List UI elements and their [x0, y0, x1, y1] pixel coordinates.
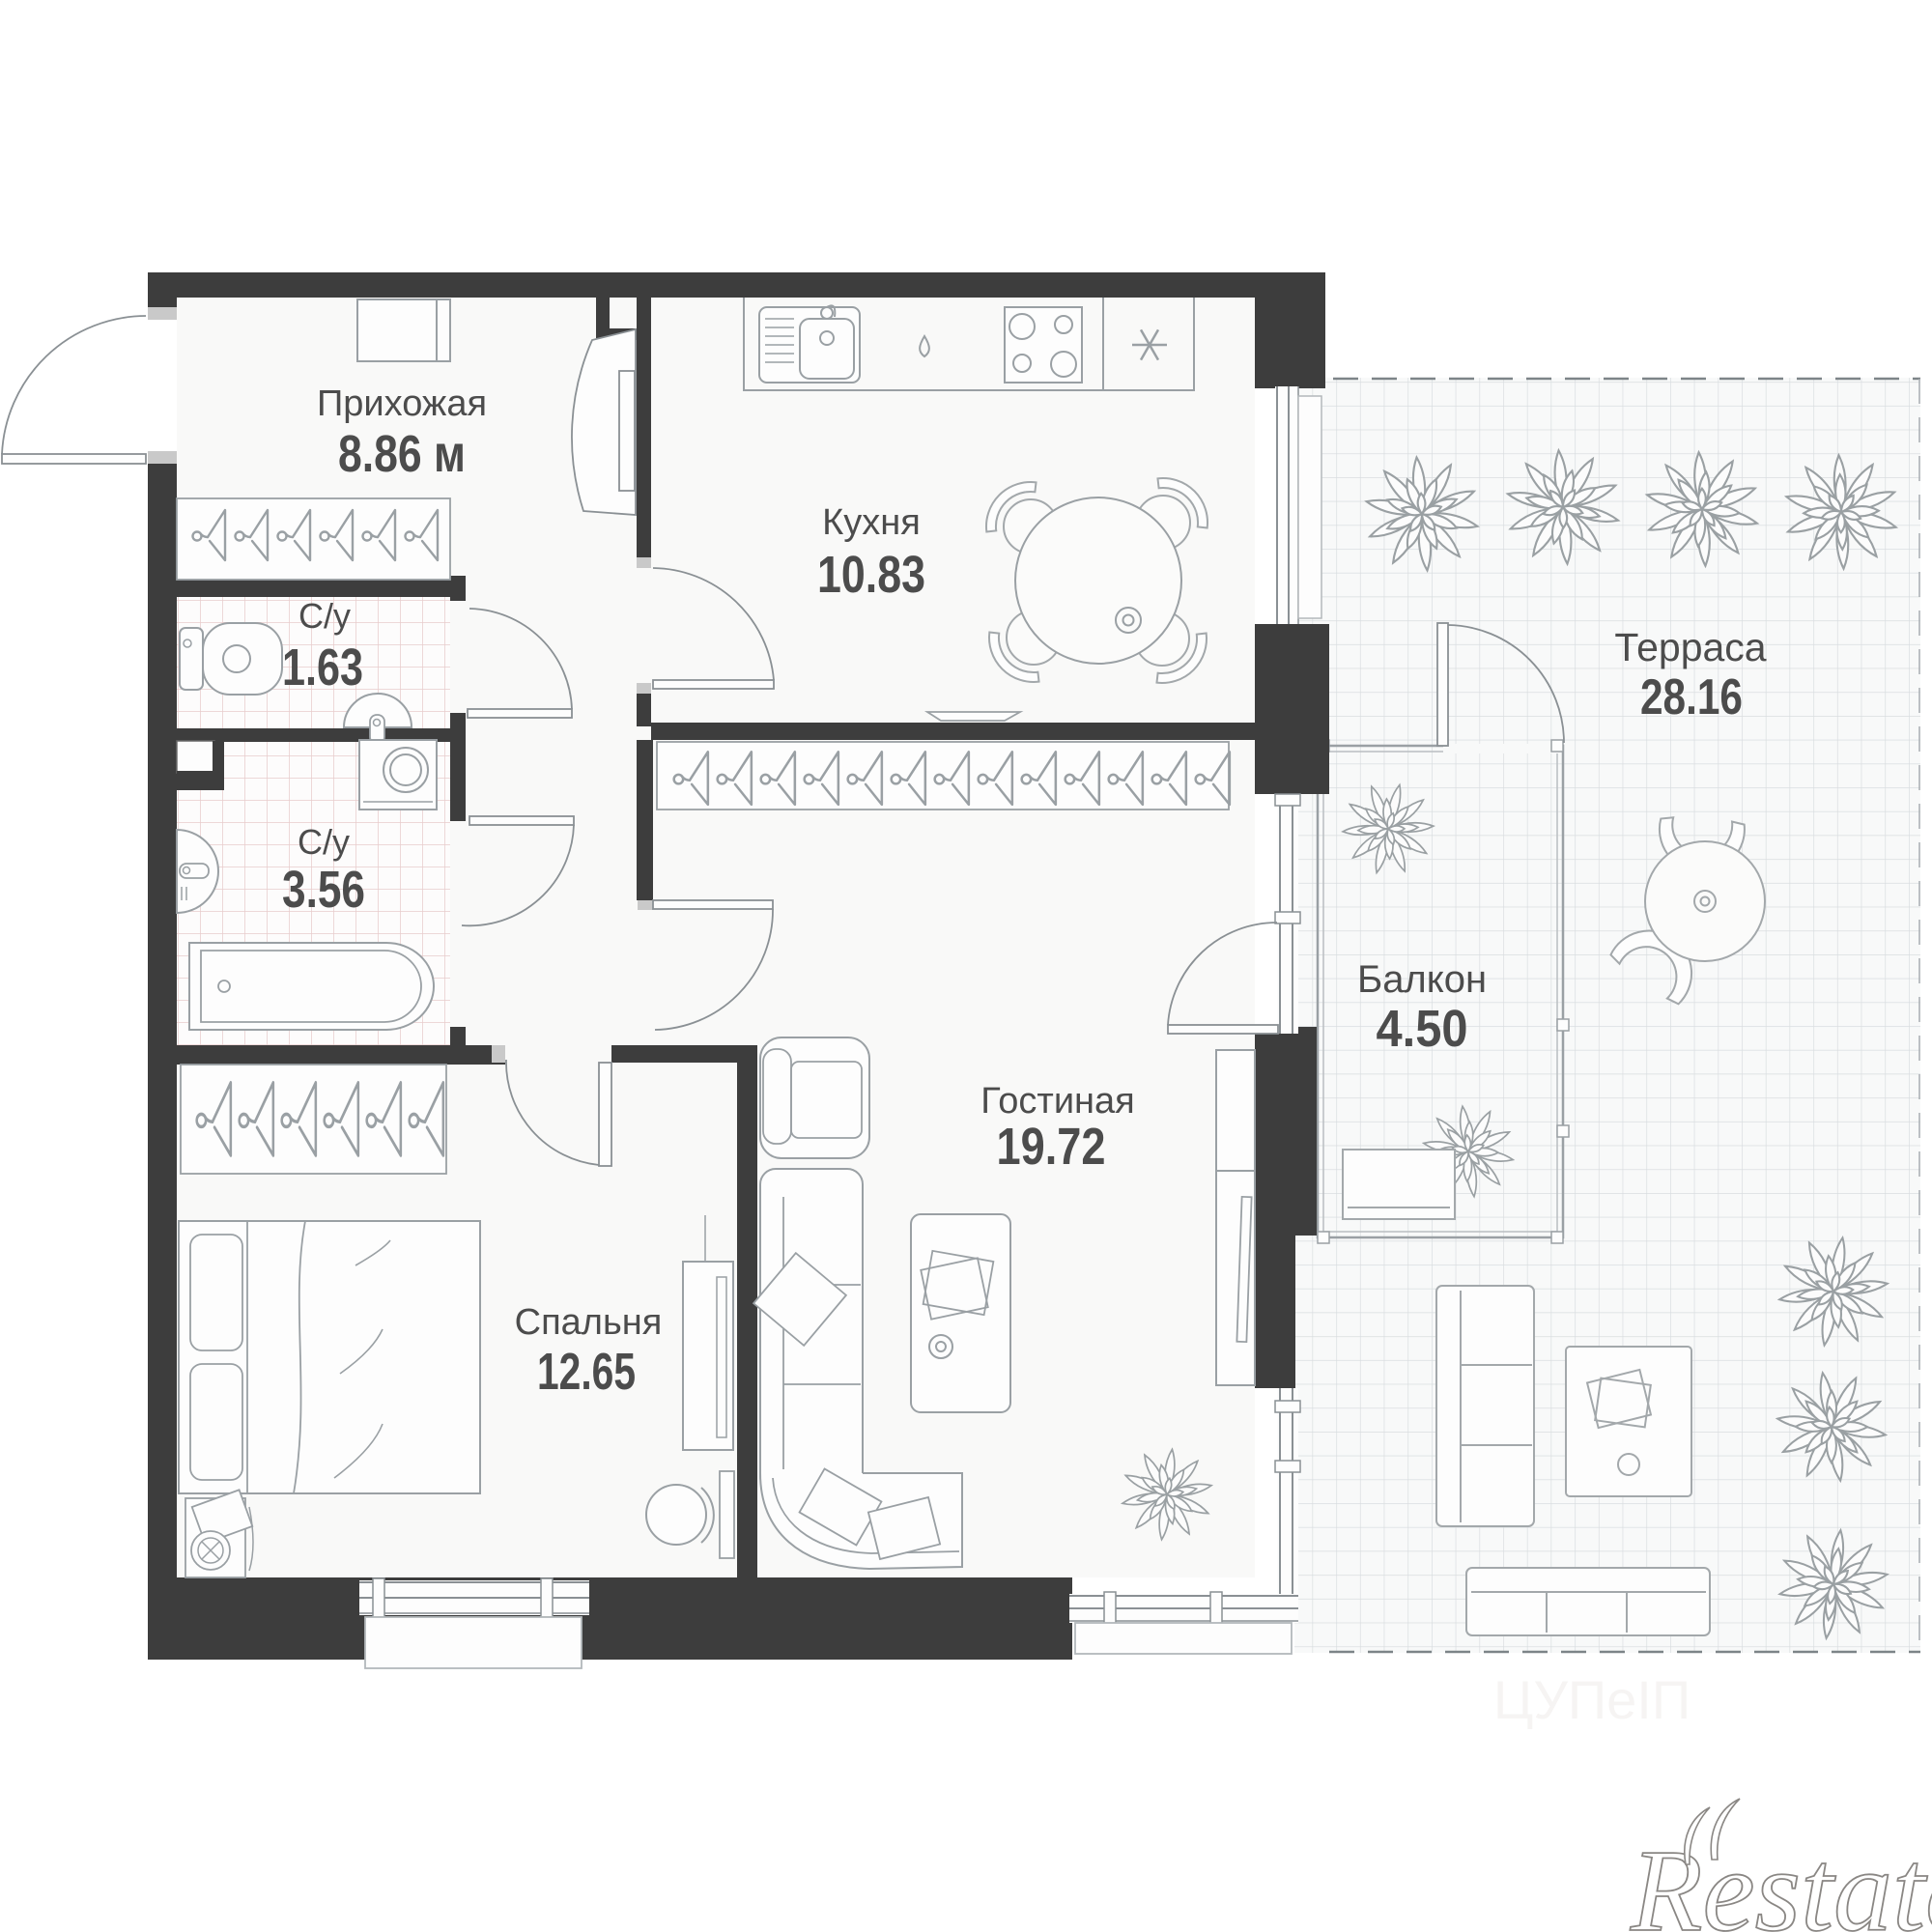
svg-text:С/у: С/у [298, 822, 350, 862]
svg-text:28.16: 28.16 [1640, 669, 1743, 725]
svg-text:8.86 м: 8.86 м [338, 425, 466, 483]
svg-text:Спальня: Спальня [515, 1302, 663, 1343]
svg-text:Терраса: Терраса [1614, 625, 1766, 669]
svg-text:ЦУПеІП: ЦУПеІП [1493, 1669, 1690, 1730]
svg-text:3.56: 3.56 [282, 861, 365, 919]
svg-text:Балкон: Балкон [1357, 958, 1487, 1001]
svg-text:4.50: 4.50 [1377, 1000, 1468, 1058]
svg-text:Гостиная: Гостиная [980, 1081, 1135, 1122]
svg-text:1.63: 1.63 [282, 639, 363, 696]
svg-text:С/у: С/у [298, 596, 351, 636]
svg-text:12.65: 12.65 [537, 1343, 636, 1401]
svg-text:Кухня: Кухня [822, 502, 921, 543]
svg-text:10.83: 10.83 [817, 546, 925, 604]
svg-text:Restate: Restate [1630, 1826, 1932, 1932]
svg-text:Прихожая: Прихожая [317, 384, 487, 424]
svg-text:19.72: 19.72 [997, 1118, 1106, 1176]
